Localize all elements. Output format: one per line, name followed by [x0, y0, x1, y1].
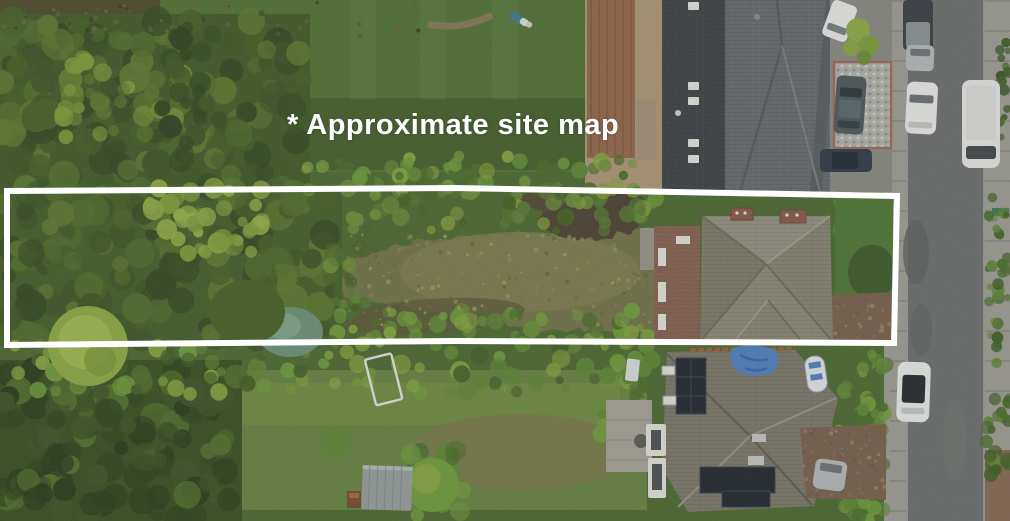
- grain-light: [0, 0, 1010, 521]
- site-map-annotation-label: * Approximate site map: [287, 109, 619, 142]
- aerial-site-photo: * Approximate site map: [0, 0, 1010, 521]
- aerial-scene: [0, 0, 1010, 521]
